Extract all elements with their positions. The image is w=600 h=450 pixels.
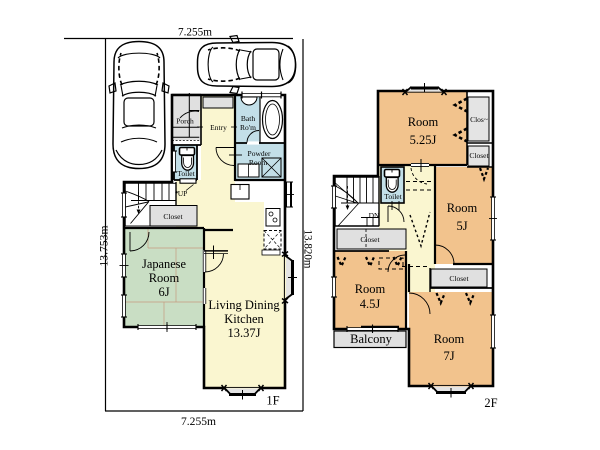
svg-text:Bath: Bath — [241, 114, 255, 123]
svg-text:Room: Room — [408, 115, 439, 129]
svg-text:Room: Room — [149, 271, 180, 285]
svg-text:13.37J: 13.37J — [228, 326, 261, 340]
svg-text:7J: 7J — [443, 349, 454, 363]
svg-text:Living Dining: Living Dining — [208, 298, 280, 312]
svg-text:Kitchen: Kitchen — [224, 312, 264, 326]
svg-text:Closet: Closet — [163, 212, 183, 221]
svg-text:Balcony: Balcony — [350, 332, 392, 346]
svg-text:Entry: Entry — [210, 123, 227, 132]
svg-text:Room: Room — [249, 158, 268, 167]
svg-text:1F: 1F — [266, 394, 279, 408]
svg-text:6J: 6J — [158, 285, 169, 299]
svg-text:5.25J: 5.25J — [410, 133, 437, 147]
svg-text:4.5J: 4.5J — [360, 297, 381, 311]
svg-text:13.753m: 13.753m — [97, 225, 111, 267]
svg-text:2F: 2F — [484, 396, 497, 410]
svg-text:Room: Room — [355, 282, 386, 296]
svg-text:Ro'm: Ro'm — [240, 123, 256, 132]
svg-text:Clos~: Clos~ — [470, 115, 488, 124]
svg-text:5J: 5J — [456, 219, 467, 233]
svg-text:Room: Room — [447, 201, 478, 215]
svg-text:Closet: Closet — [360, 235, 380, 244]
svg-text:Japanese: Japanese — [142, 257, 186, 271]
svg-text:Toilet: Toilet — [177, 169, 195, 178]
svg-text:DN: DN — [369, 211, 380, 220]
svg-text:Closet: Closet — [449, 274, 469, 283]
svg-text:Closet: Closet — [469, 151, 489, 160]
svg-text:Room: Room — [434, 332, 465, 346]
svg-text:Porch: Porch — [176, 117, 194, 126]
svg-text:Toilet: Toilet — [384, 192, 402, 201]
svg-text:7.255m: 7.255m — [178, 25, 213, 39]
svg-text:Powder: Powder — [248, 149, 271, 158]
svg-text:7.255m: 7.255m — [181, 414, 217, 428]
svg-text:UP: UP — [178, 189, 188, 198]
svg-text:13.820m: 13.820m — [302, 230, 316, 270]
